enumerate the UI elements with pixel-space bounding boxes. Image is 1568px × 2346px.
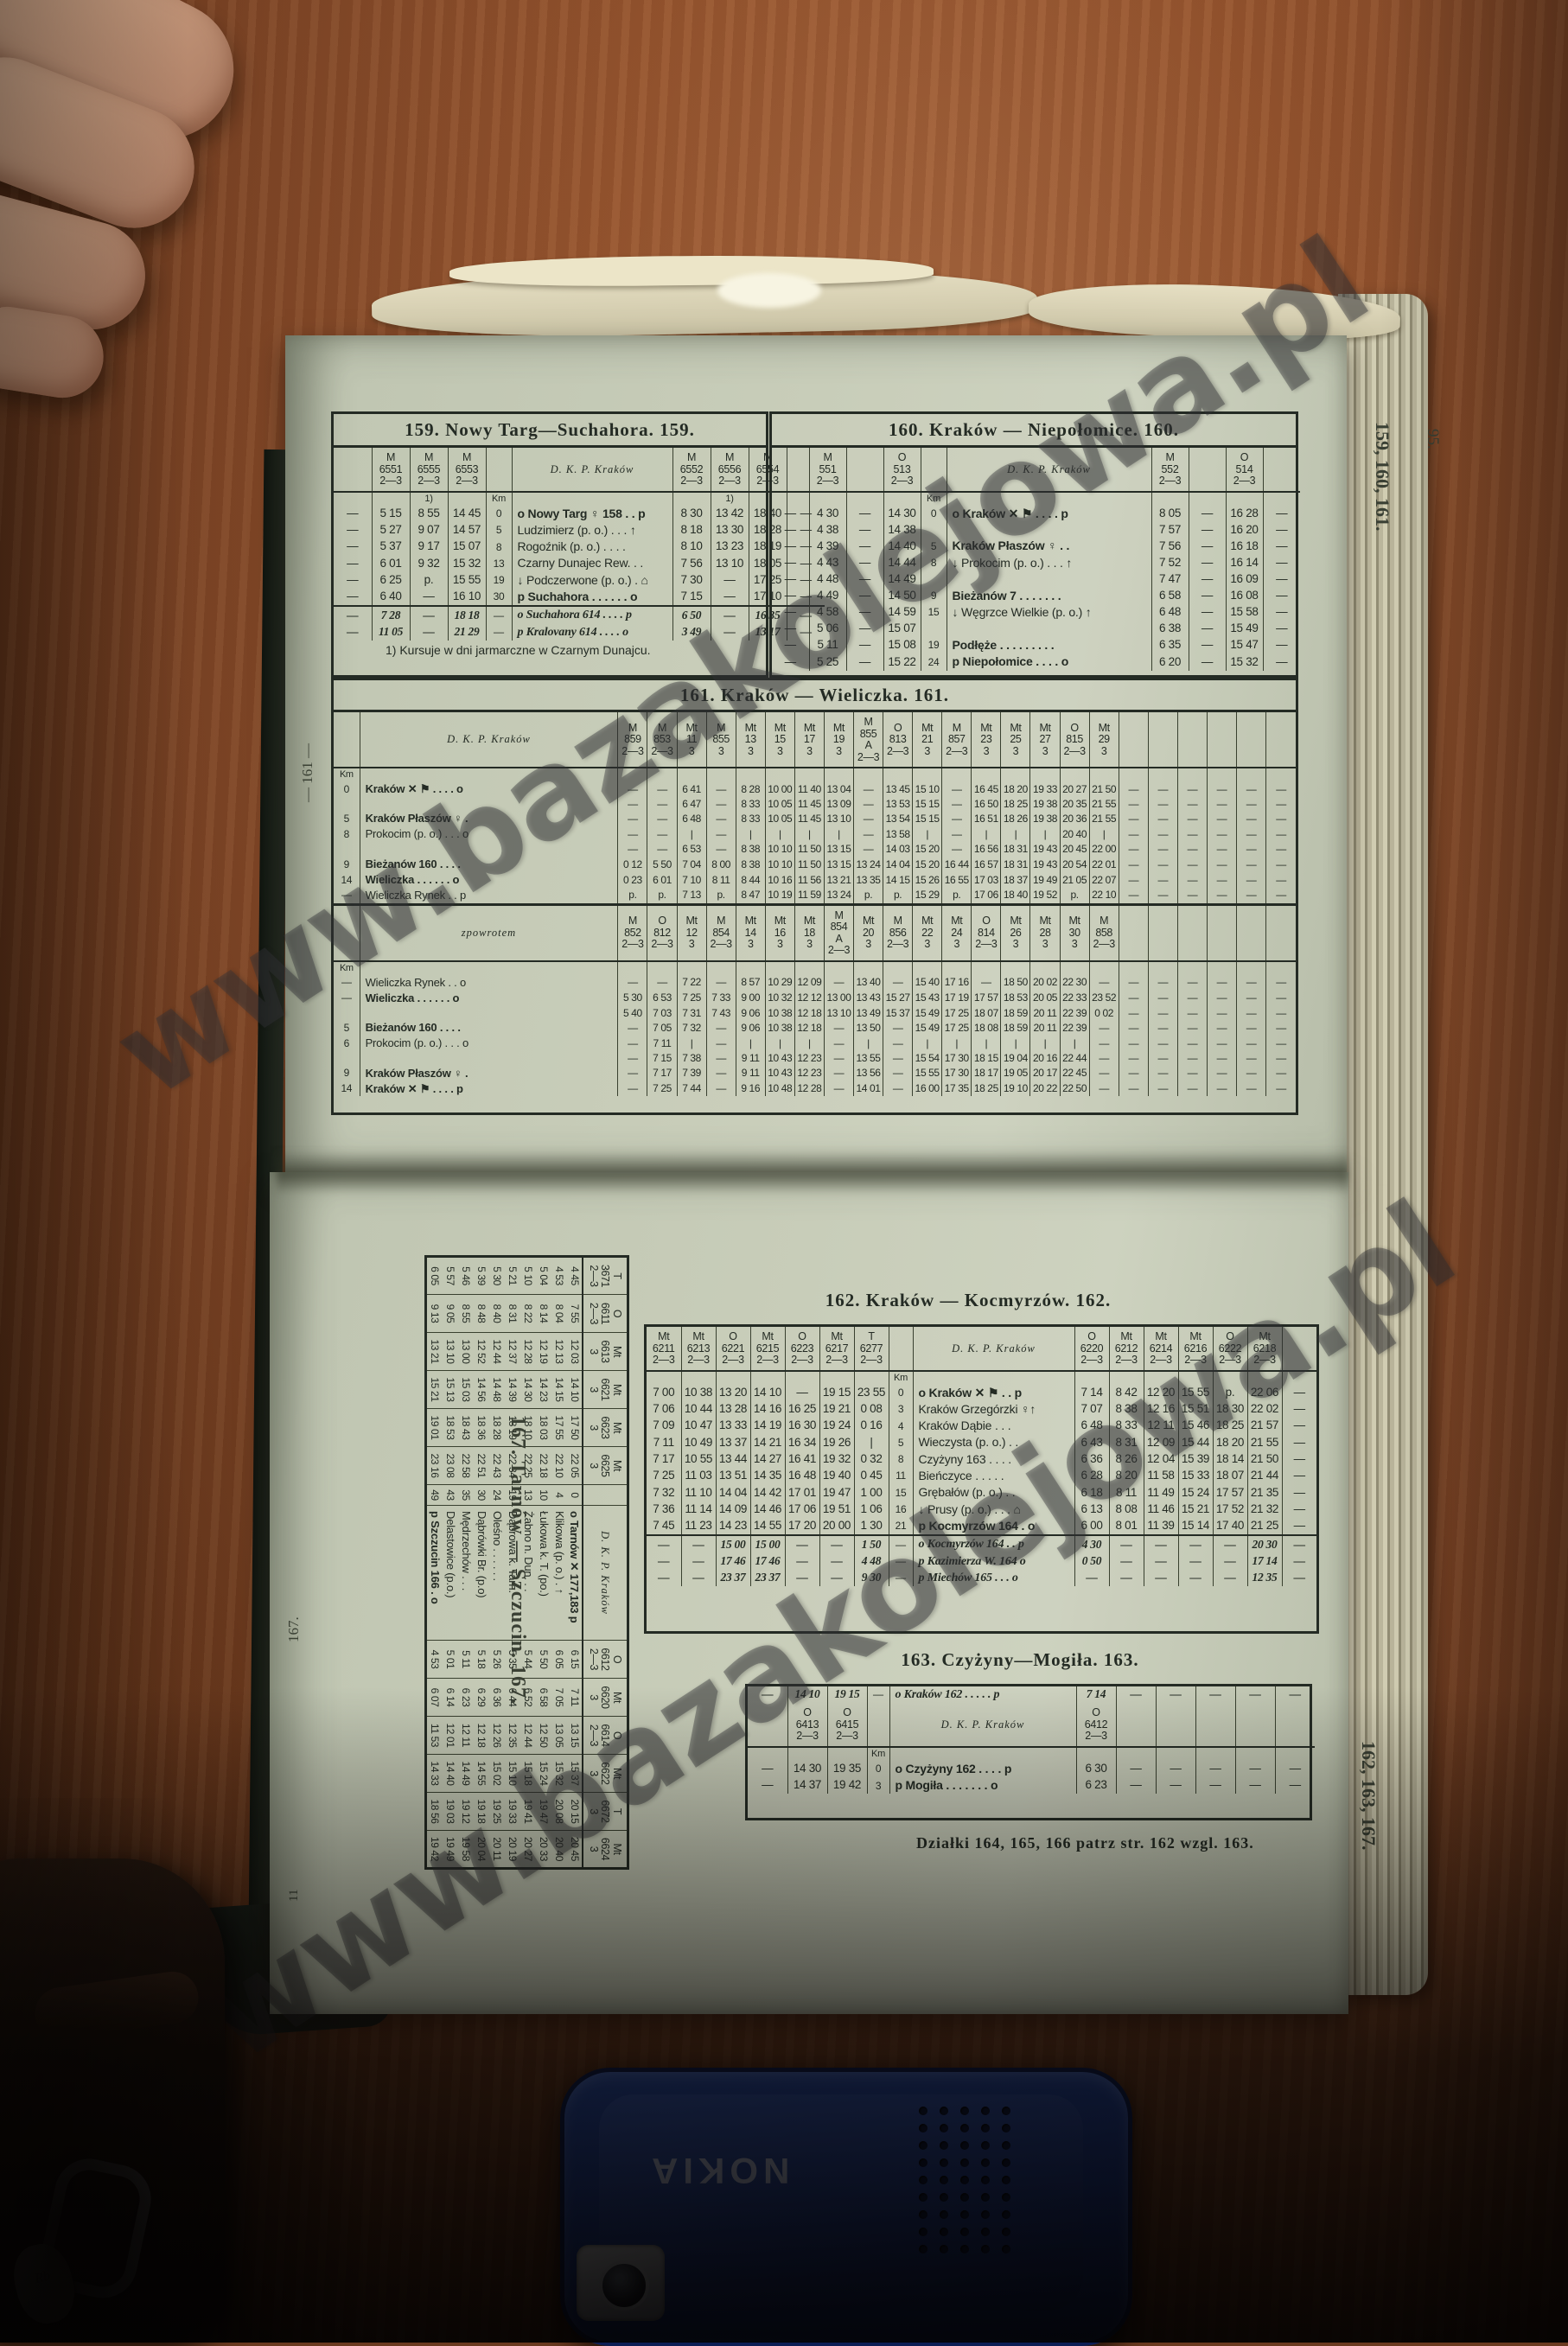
- photo-vignette: [0, 0, 1568, 2343]
